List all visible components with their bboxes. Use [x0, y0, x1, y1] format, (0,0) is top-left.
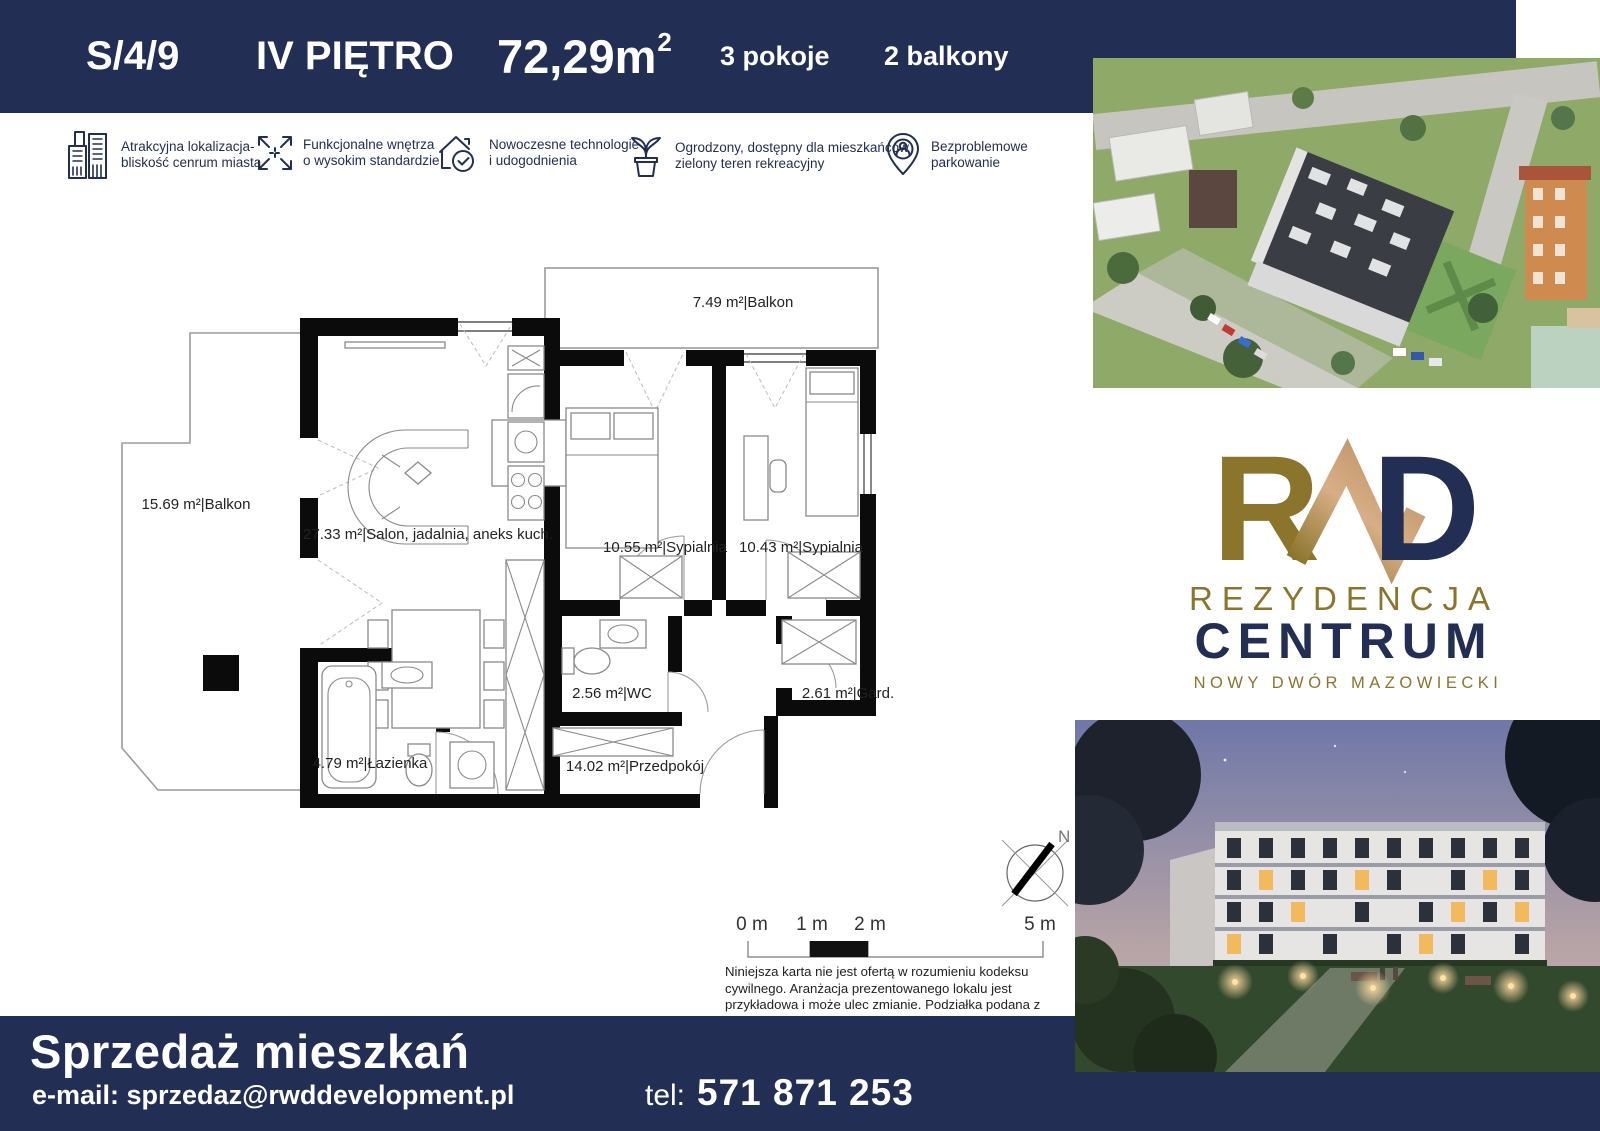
feature-parking: Bezproblemoweparkowanie: [884, 132, 1028, 178]
rooms-count: 3 pokoje: [720, 0, 830, 113]
compass-north-label: N: [1058, 827, 1070, 846]
room-label-gard: 2.61 m²|Gard.: [802, 685, 894, 702]
bath-toilet: [406, 744, 432, 786]
feature-line2: o wysokim standardzie: [303, 153, 440, 169]
room-label-sypialnia-1: 10.55 m²|Sypialnia: [603, 539, 728, 556]
wardrobe-bedroom-1: [620, 556, 682, 598]
room-label-wc: 2.56 m²|WC: [572, 685, 652, 702]
bed-2: [806, 368, 858, 516]
hall-wardrobe: [553, 728, 673, 756]
footer-phone: tel: 571 871 253: [645, 1072, 914, 1114]
feature-technology: Nowoczesne technologiei udogodnienia: [436, 132, 639, 174]
washing-machine: [450, 742, 494, 788]
bath-sink: [382, 662, 432, 688]
feature-green-area: Ogrodzony, dostępny dla mieszkańcówzielo…: [626, 134, 909, 178]
developer-logo: R D REZYDENCJA CENTRUM NOWY DWÓR MAZOWIE…: [1100, 438, 1540, 708]
building-icon: [66, 129, 112, 181]
wc-toilet: [562, 648, 610, 674]
scale-label-5: 5 m: [1024, 914, 1056, 935]
logo-name-line1: REZYDENCJA: [1189, 580, 1499, 617]
feature-line1: Nowoczesne technologie: [489, 137, 639, 153]
feature-line2: i udogodnienia: [489, 153, 639, 169]
parking-pin-icon: [884, 132, 922, 178]
logo-letter-r: R: [1212, 438, 1320, 592]
room-label-salon: 27.33 m²|Salon, jadalnia, aneks kuch.: [303, 526, 553, 543]
walls: [300, 318, 876, 808]
house-check-icon: [436, 132, 480, 174]
balcony-outline-left: [122, 333, 300, 790]
feature-line2: parkowanie: [931, 155, 1028, 171]
door-arcs: [318, 324, 836, 794]
room-label-balkon-top: 7.49 m²|Balkon: [693, 294, 794, 311]
desk: [744, 436, 786, 520]
scale-label-1: 1 m: [796, 914, 828, 935]
feature-line1: Atrakcyjna lokalizacja-: [121, 139, 261, 155]
wc-sink: [600, 620, 646, 648]
phone-label: tel:: [645, 1079, 685, 1113]
windows: [458, 322, 871, 494]
coffee-table: [492, 420, 566, 486]
balconies-count: 2 balkony: [884, 0, 1009, 113]
sofa: [348, 430, 468, 544]
room-label-balkon-left: 15.69 m²|Balkon: [142, 496, 251, 513]
offer-card-page: S/4/9 IV PIĘTRO 72,29m2 3 pokoje 2 balko…: [0, 0, 1600, 1131]
footer-title: Sprzedaż mieszkań: [30, 1024, 470, 1079]
unit-id: S/4/9: [86, 0, 179, 113]
expand-arrows-icon: [256, 134, 294, 172]
scale-bar: 0 m 1 m 2 m 5 m: [736, 914, 1056, 957]
scale-label-0: 0 m: [736, 914, 768, 935]
feature-line1: Funkcjonalne wnętrza: [303, 137, 440, 153]
footer-email: e-mail: sprzedaz@rwddevelopment.pl: [32, 1080, 514, 1111]
bed-1: [566, 408, 658, 548]
feature-interiors: Funkcjonalne wnętrzao wysokim standardzi…: [256, 134, 440, 172]
compass-icon: N: [1002, 827, 1070, 906]
gard-wardrobe: [782, 620, 856, 664]
tv: [345, 342, 445, 348]
logo-city: NOWY DWÓR MAZOWIECKI: [1194, 673, 1503, 692]
scale-label-2: 2 m: [854, 914, 886, 935]
area-superscript: 2: [657, 27, 671, 58]
logo-name-line2: CENTRUM: [1195, 613, 1494, 669]
area-value: 72,29m2: [497, 0, 672, 113]
feature-line2: zielony teren rekreacyjny: [675, 156, 909, 172]
room-label-przedpokoj: 14.02 m²|Przedpokój: [566, 758, 704, 775]
bathtub: [322, 666, 376, 788]
plant-icon: [626, 134, 666, 178]
room-label-sypialnia-2: 10.43 m²|Sypialnia: [739, 539, 864, 556]
kitchen-units: [506, 346, 544, 790]
feature-location: Atrakcyjna lokalizacja-bliskość cenrum m…: [66, 129, 261, 181]
dining-table: [368, 610, 504, 728]
feature-line2: bliskość cenrum miasta: [121, 155, 261, 171]
floor-label: IV PIĘTRO: [256, 0, 454, 113]
balcony-outline-top: [545, 268, 878, 348]
photo-building-aerial: [1093, 58, 1600, 388]
photo-building-evening: [1075, 720, 1600, 1072]
room-label-lazienka: 4.79 m²|Łazienka: [313, 755, 428, 772]
wardrobe-bedroom-2: [788, 552, 860, 598]
logo-letter-d: D: [1372, 438, 1480, 592]
area-main: 72,29m: [497, 29, 656, 84]
balcony-pillar: [203, 655, 239, 691]
feature-line1: Bezproblemowe: [931, 139, 1028, 155]
phone-number: 571 871 253: [697, 1072, 914, 1114]
feature-line1: Ogrodzony, dostępny dla mieszkańców: [675, 140, 909, 156]
